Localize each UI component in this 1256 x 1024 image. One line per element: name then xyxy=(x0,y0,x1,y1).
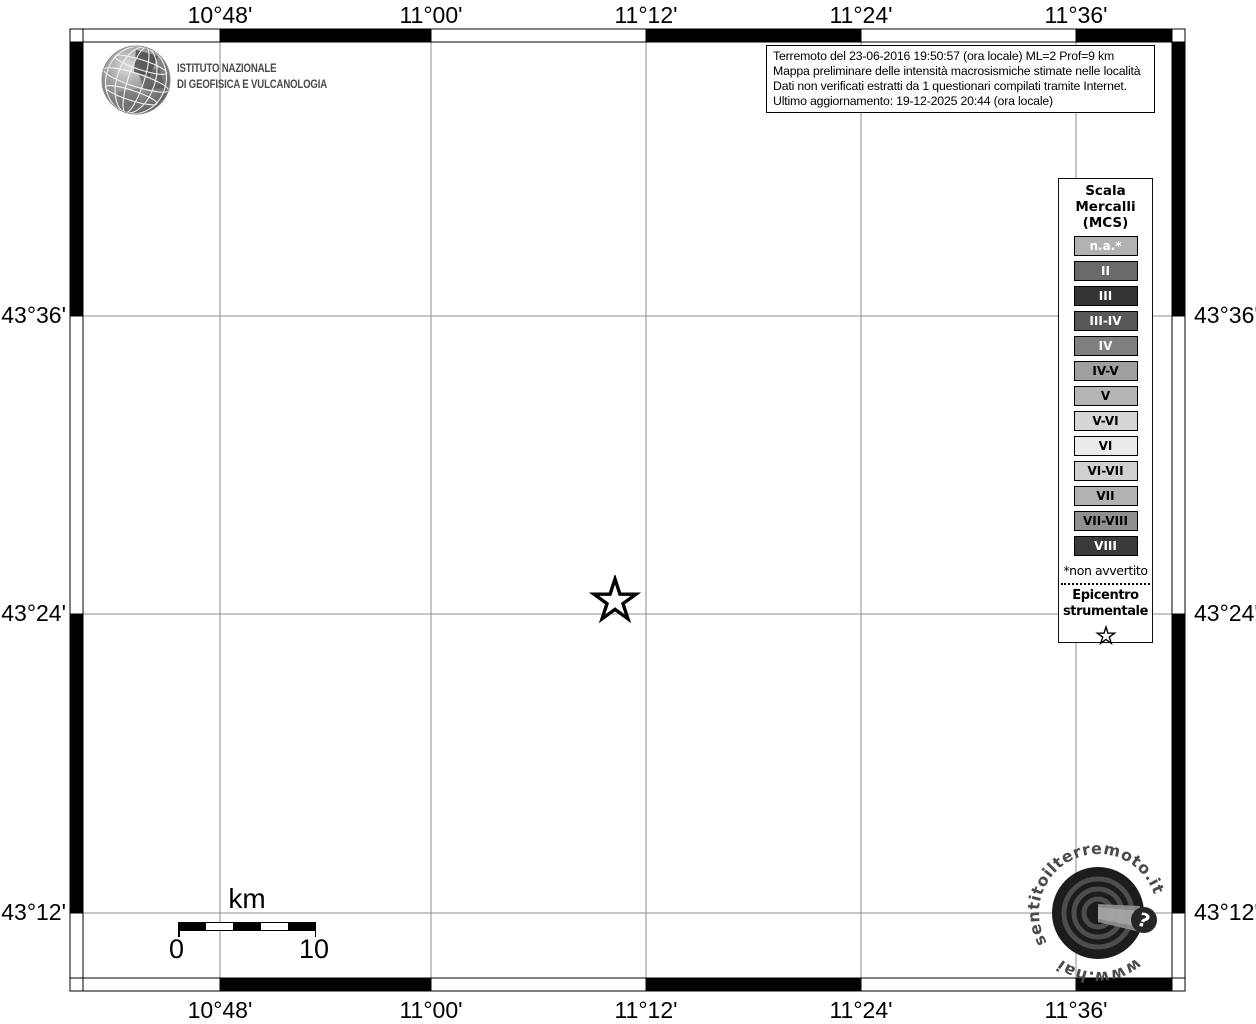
scale-bar-start-label: 0 xyxy=(169,934,184,965)
earthquake-intensity-map: 10°48'10°48'11°00'11°00'11°12'11°12'11°2… xyxy=(0,0,1256,1024)
scale-bar-unit: km xyxy=(178,884,316,914)
watermark-arc-bottom-text: www.hai xyxy=(1053,955,1145,988)
legend-item-vivii: VI-VII xyxy=(1074,461,1138,481)
legend-item-ivv: IV-V xyxy=(1074,361,1138,381)
ingv-line2: DI GEOFISICA E VULCANOLOGIA xyxy=(177,76,327,92)
legend-item-viiviii: VII-VIII xyxy=(1074,511,1138,531)
border-seg-left xyxy=(70,614,83,913)
lon-label-top-2: 11°12' xyxy=(596,2,696,29)
border-corner xyxy=(1172,29,1185,42)
ingv-globe-icon xyxy=(98,42,174,118)
info-line-map: Mappa preliminare delle intensità macros… xyxy=(773,64,1148,79)
lon-label-top-1: 11°00' xyxy=(381,2,481,29)
event-info-box: Terremoto del 23-06-2016 19:50:57 (ora l… xyxy=(766,45,1155,113)
info-line-event: Terremoto del 23-06-2016 19:50:57 (ora l… xyxy=(773,49,1148,64)
legend-items: n.a.*IIIIIIII-IVIVIV-VVV-VIVIVI-VIIVIIVI… xyxy=(1059,236,1152,556)
border-seg-top xyxy=(1076,29,1185,42)
legend-item-vvi: V-VI xyxy=(1074,411,1138,431)
border-seg-top xyxy=(646,29,861,42)
lon-label-top-4: 11°36' xyxy=(1026,2,1126,29)
scale-bar-end-label: 10 xyxy=(299,934,329,965)
border-seg-top xyxy=(70,29,220,42)
legend-epicenter-star-icon xyxy=(1093,623,1119,649)
info-line-data: Dati non verificati estratti da 1 questi… xyxy=(773,79,1148,94)
lon-label-bottom-3: 11°24' xyxy=(811,997,911,1024)
lat-label-left-0: 43°36' xyxy=(0,302,66,329)
lat-label-right-2: 43°12' xyxy=(1194,899,1256,926)
legend-item-iiiiv: III-IV xyxy=(1074,311,1138,331)
legend-item-viii: VIII xyxy=(1074,536,1138,556)
lon-label-top-0: 10°48' xyxy=(170,2,270,29)
legend-item-v: V xyxy=(1074,386,1138,406)
legend-item-ii: II xyxy=(1074,261,1138,281)
border-seg-bottom xyxy=(431,978,646,991)
legend-epicenter-label-2: strumentale xyxy=(1059,604,1152,620)
border-seg-right xyxy=(1172,316,1185,614)
border-seg-top xyxy=(861,29,1076,42)
legend-epicenter-label-1: Epicentro xyxy=(1059,588,1152,604)
lon-label-top-3: 11°24' xyxy=(811,2,911,29)
info-line-update: Ultimo aggiornamento: 19-12-2025 20:44 (… xyxy=(773,94,1148,109)
lat-label-right-0: 43°36' xyxy=(1194,302,1256,329)
border-seg-bottom xyxy=(220,978,431,991)
legend-item-vi: VI xyxy=(1074,436,1138,456)
border-seg-right xyxy=(1172,29,1185,316)
epicenter-star-icon xyxy=(589,575,641,627)
lon-label-bottom-1: 11°00' xyxy=(381,997,481,1024)
scale-bar-segments xyxy=(178,922,316,931)
border-seg-bottom xyxy=(646,978,861,991)
legend-title-3: (MCS) xyxy=(1059,215,1152,231)
legend-footnote: *non avvertito xyxy=(1059,563,1152,578)
border-seg-bottom xyxy=(70,978,220,991)
legend-title-2: Mercalli xyxy=(1059,199,1152,215)
border-seg-left xyxy=(70,29,83,316)
legend-panel: Scala Mercalli (MCS) n.a.*IIIIIIII-IVIVI… xyxy=(1058,178,1153,643)
border-corner xyxy=(70,29,83,42)
legend-item-na: n.a.* xyxy=(1074,236,1138,256)
lon-label-bottom-0: 10°48' xyxy=(170,997,270,1024)
lon-label-bottom-2: 11°12' xyxy=(596,997,696,1024)
legend-item-vii: VII xyxy=(1074,486,1138,506)
border-seg-left xyxy=(70,316,83,614)
legend-item-iv: IV xyxy=(1074,336,1138,356)
border-corner xyxy=(70,978,83,991)
scale-bar: km 0 10 xyxy=(178,884,316,931)
lon-label-bottom-4: 11°36' xyxy=(1026,997,1126,1024)
legend-divider xyxy=(1061,583,1150,585)
lat-label-right-1: 43°24' xyxy=(1194,600,1256,627)
border-seg-top xyxy=(220,29,431,42)
lat-label-left-2: 43°12' xyxy=(0,899,66,926)
haisentitoilterremoto-logo: sentitoilterremoto.it www.hai ? xyxy=(1026,843,1176,993)
border-seg-top xyxy=(431,29,646,42)
lat-label-left-1: 43°24' xyxy=(0,600,66,627)
ingv-logo-text: ISTITUTO NAZIONALE DI GEOFISICA E VULCAN… xyxy=(177,60,327,92)
ingv-line1: ISTITUTO NAZIONALE xyxy=(177,60,327,76)
legend-title-1: Scala xyxy=(1059,183,1152,199)
legend-item-iii: III xyxy=(1074,286,1138,306)
